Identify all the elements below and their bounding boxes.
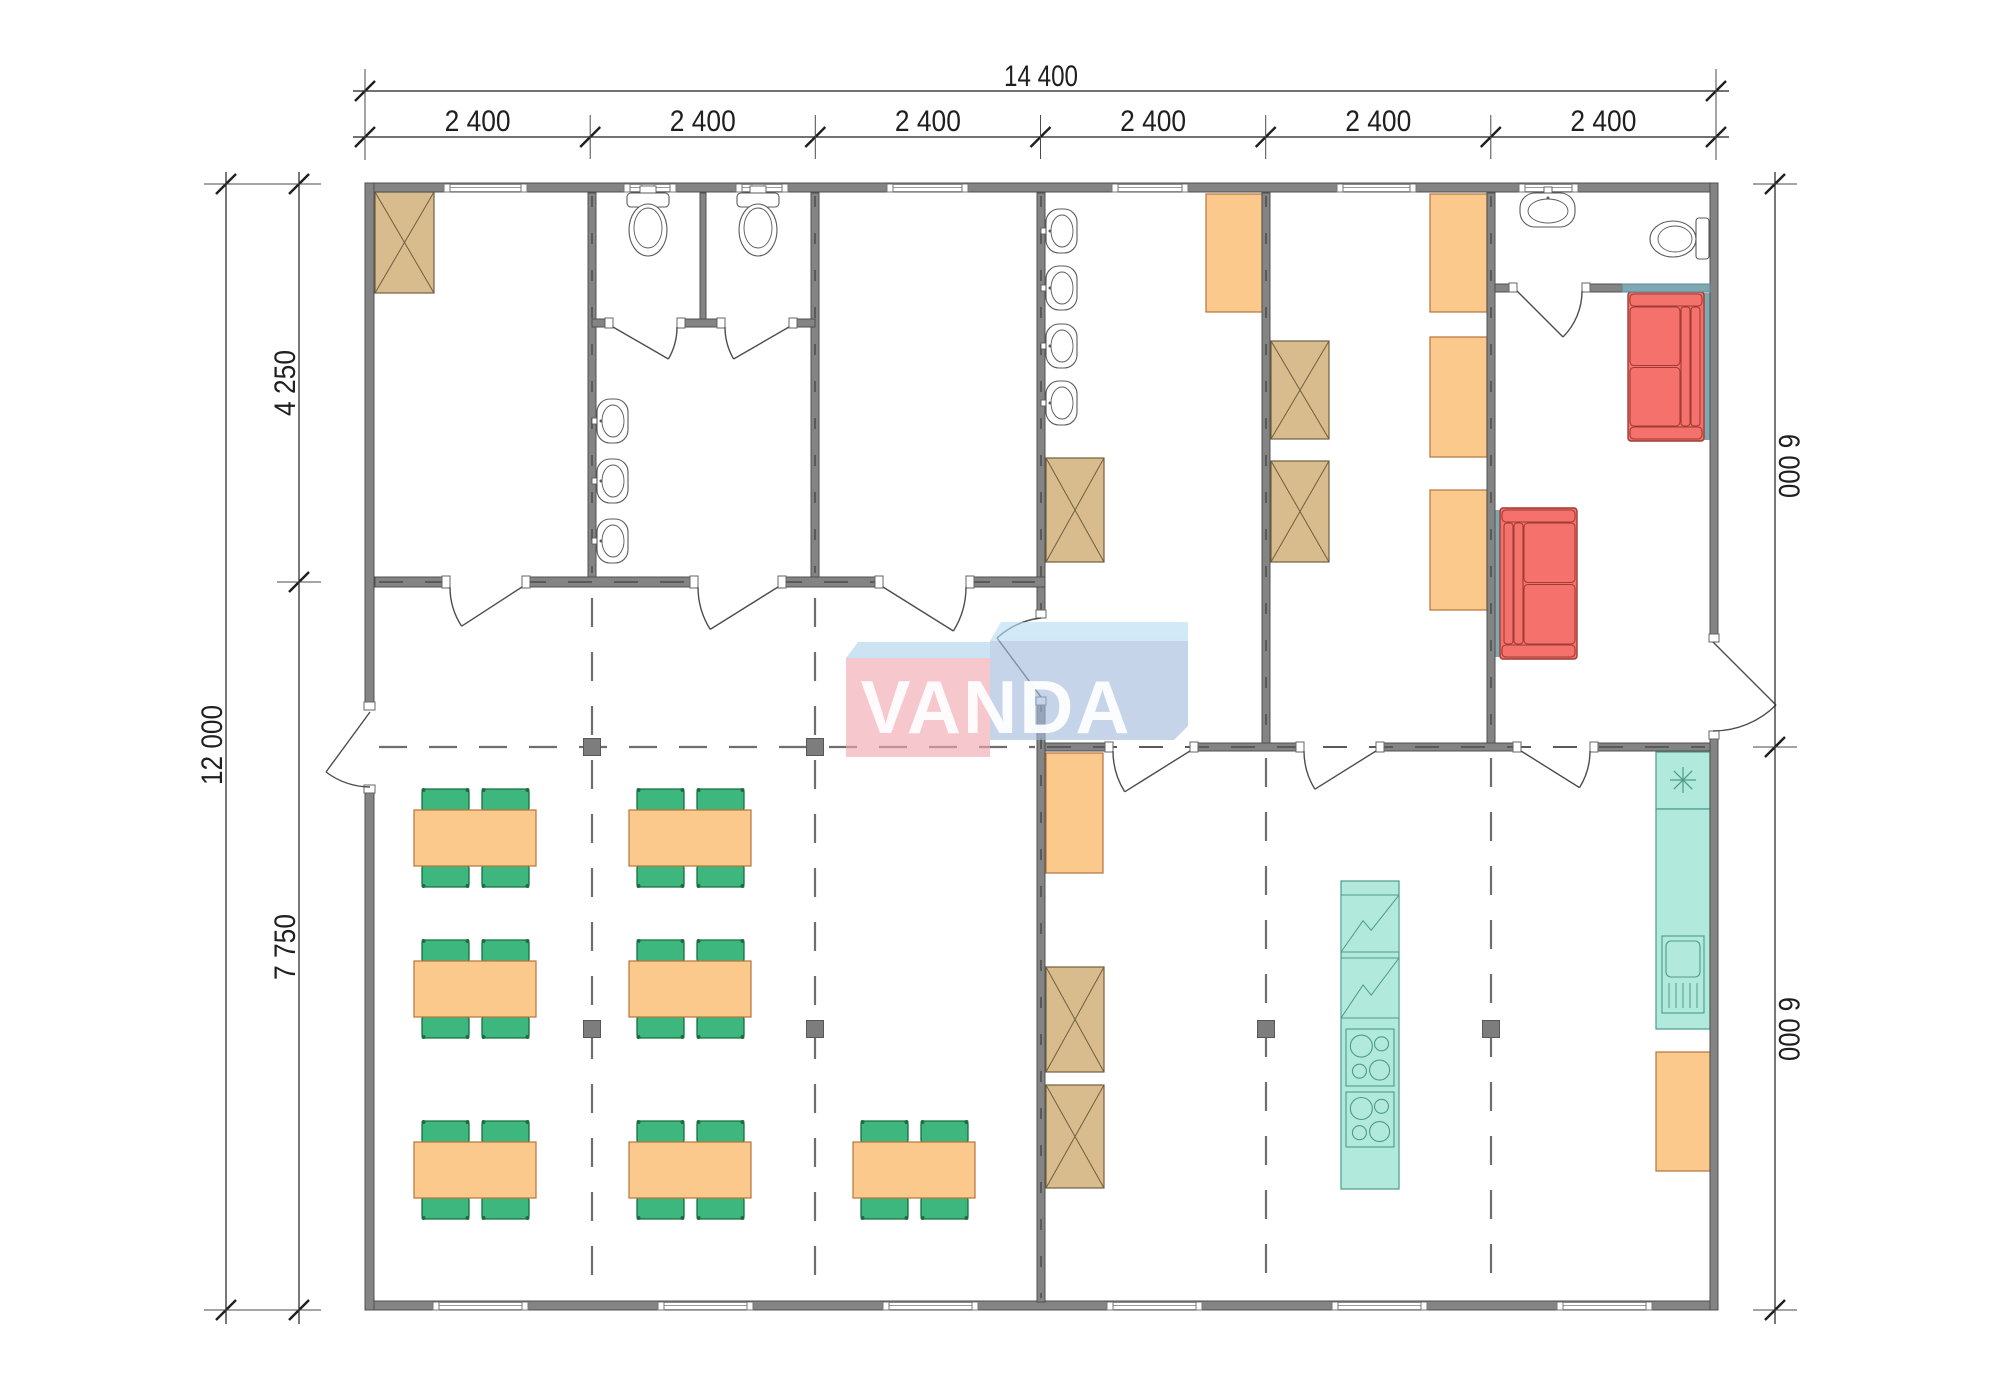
svg-text:6 000: 6 000 xyxy=(1772,434,1805,498)
svg-text:2 400: 2 400 xyxy=(895,105,961,138)
svg-text:7 750: 7 750 xyxy=(269,914,302,980)
svg-text:2 400: 2 400 xyxy=(1570,105,1636,138)
svg-text:12 000: 12 000 xyxy=(196,705,229,785)
svg-text:2 400: 2 400 xyxy=(1345,105,1411,138)
svg-text:2 400: 2 400 xyxy=(670,105,736,138)
svg-text:2 400: 2 400 xyxy=(1120,105,1186,138)
svg-text:VANDA: VANDA xyxy=(860,665,1131,749)
svg-text:6 000: 6 000 xyxy=(1772,997,1805,1061)
svg-text:14 400: 14 400 xyxy=(1004,60,1078,93)
svg-text:4 250: 4 250 xyxy=(269,350,302,416)
svg-text:2 400: 2 400 xyxy=(445,105,511,138)
